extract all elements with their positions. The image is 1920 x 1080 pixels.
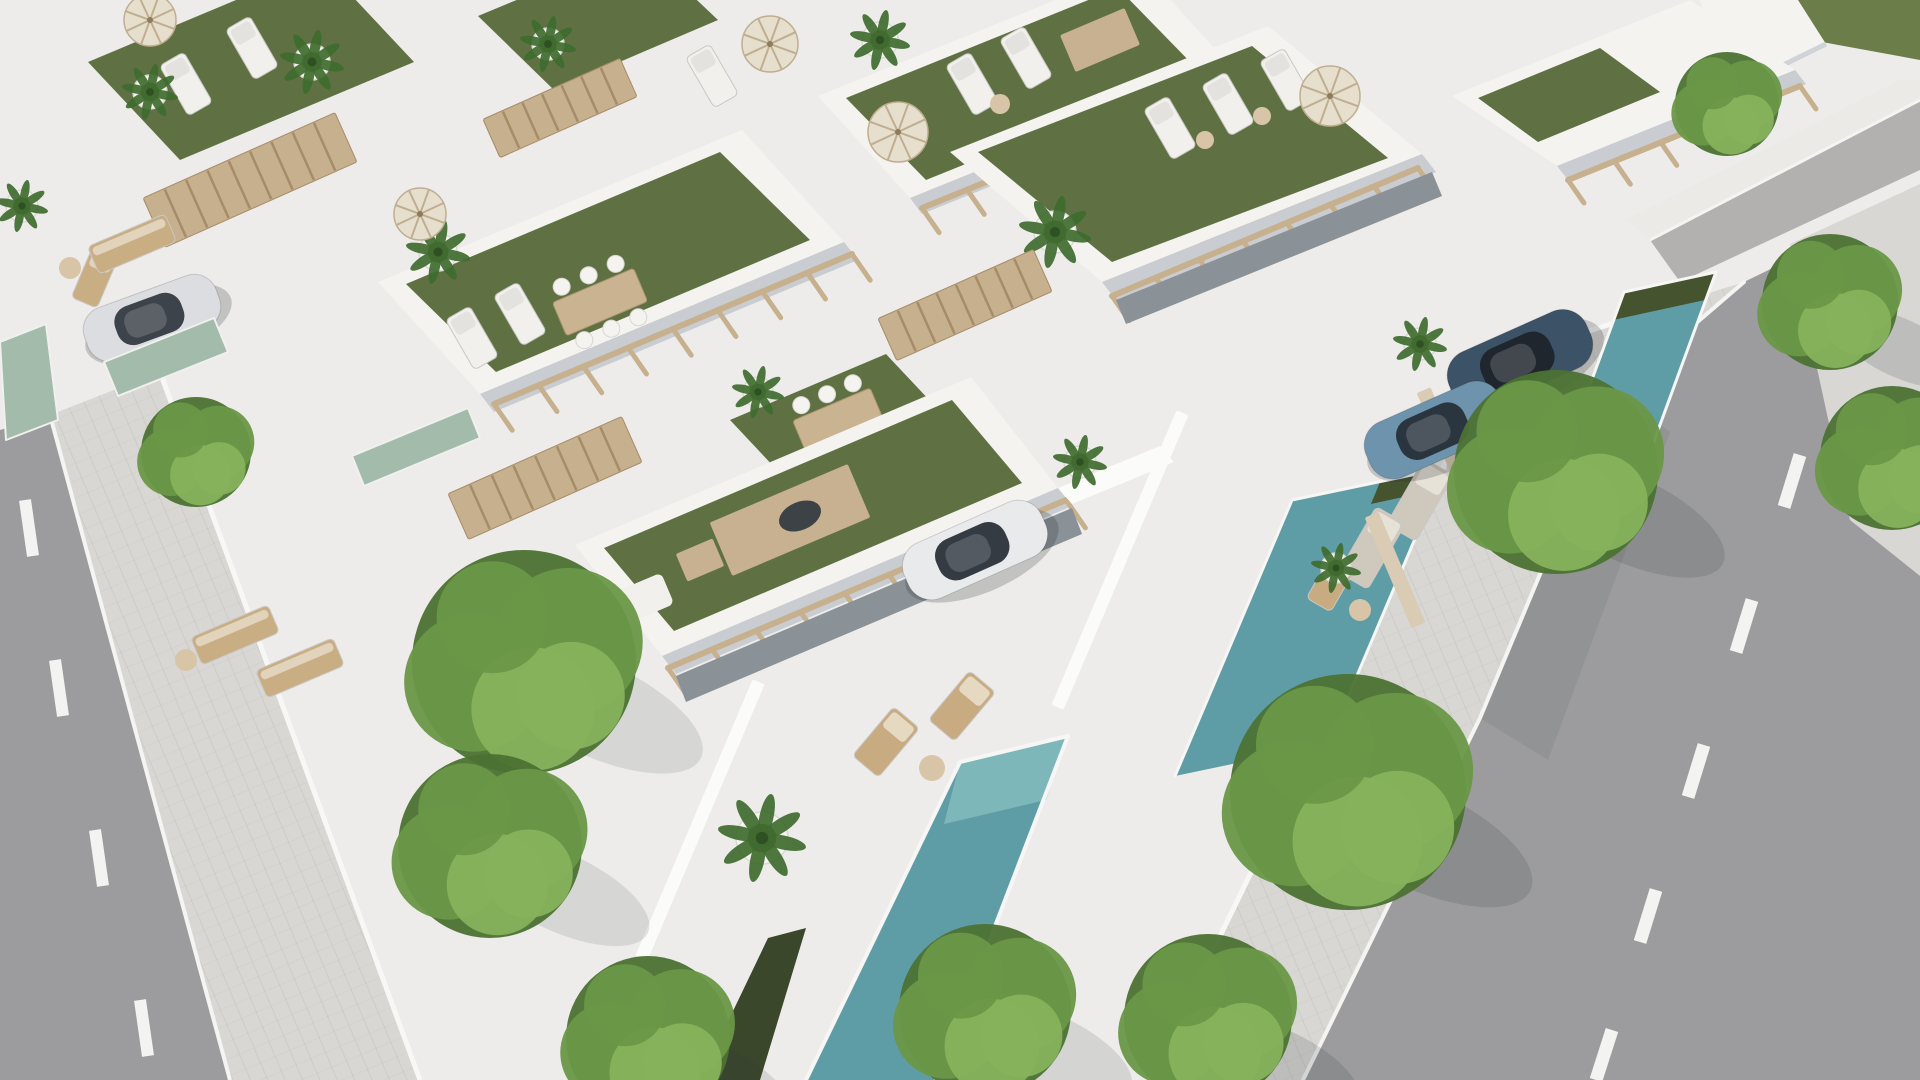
lane-dash-left-2 [55,660,63,716]
side-table-villa-mid-garden [1349,599,1371,621]
umbrella-roof-a [394,188,446,240]
umbrella-topcenter [742,16,798,72]
lane-dash-left-4 [140,1000,148,1056]
property-aerial-render: Aerial 3D render of a modern white villa… [0,0,1920,1080]
umbrella-roof-b [868,102,928,162]
side-table-roof-b [990,94,1010,114]
side-table-villa-mid-2 [1253,107,1271,125]
aerial-render-canvas [0,0,1920,1080]
lane-dash-left-1 [25,500,33,556]
side-table-northwest [59,257,81,279]
plaza-side-table [175,649,197,671]
lane-dash-left-3 [95,830,103,886]
umbrella-topleft [124,0,176,46]
umbrella-villa-mid [1300,66,1360,126]
side-table-patio [919,755,945,781]
side-table-villa-mid-1 [1196,131,1214,149]
